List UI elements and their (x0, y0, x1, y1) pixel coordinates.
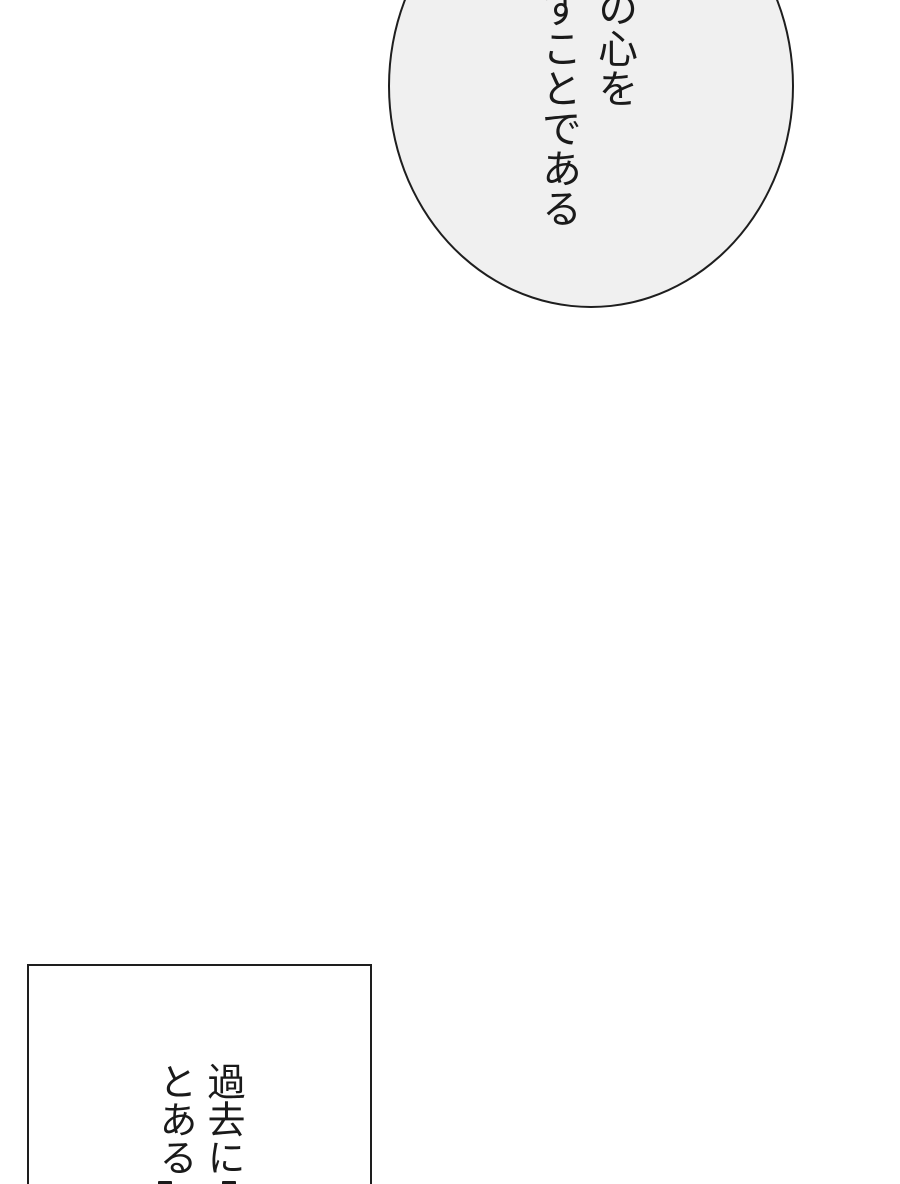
caption-text-column-right: 過去に (198, 1062, 246, 1184)
manga-page: の心を すことである 過去に とある (0, 0, 900, 1184)
caption-panel-text: 過去に とある (150, 1062, 246, 1184)
caption-text-column-left: とある (150, 1062, 198, 1184)
speech-bubble-text: の心を すことである (530, 0, 642, 248)
speech-text-column-right: の心を (586, 0, 642, 248)
speech-text-column-left: すことである (530, 0, 586, 248)
